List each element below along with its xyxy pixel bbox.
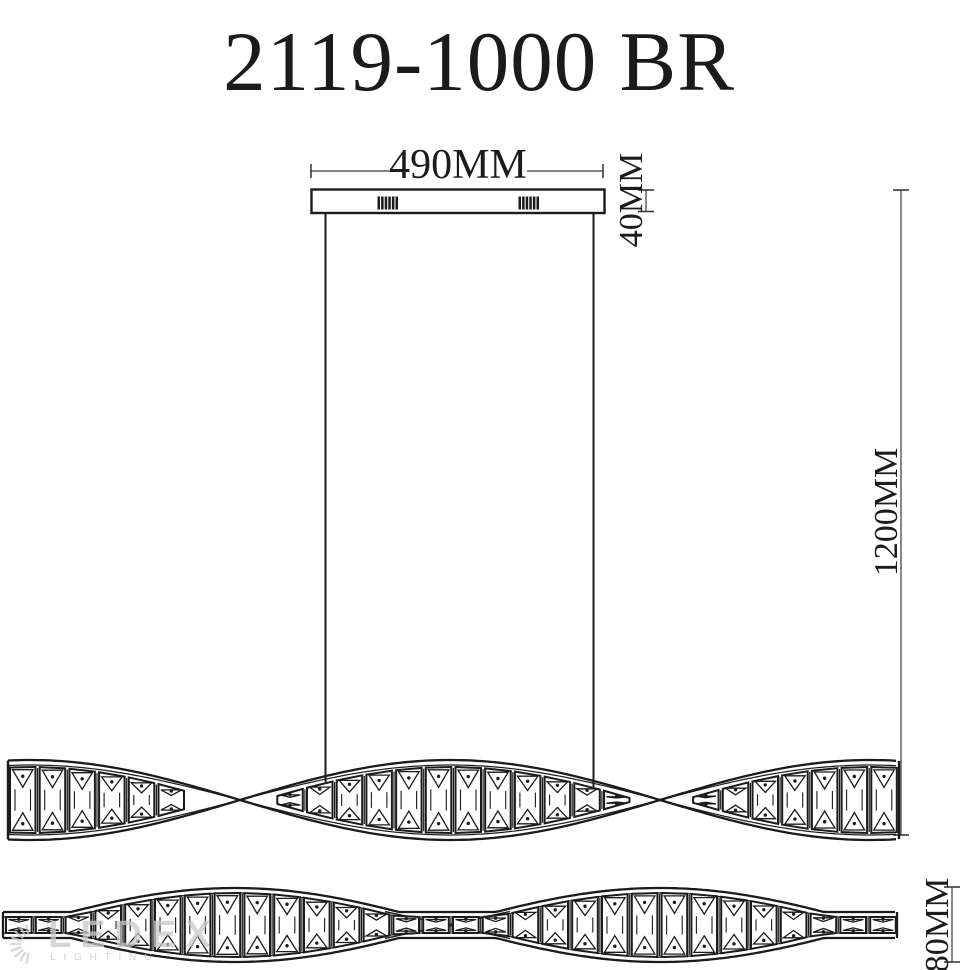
crystal-dot	[494, 917, 497, 920]
vent-bar	[533, 197, 536, 210]
crystal-dot	[375, 933, 378, 936]
canopy-width-dimension: 490MM	[311, 142, 603, 188]
crystal-dot	[852, 918, 855, 921]
crystal-dot	[51, 775, 54, 778]
crystal-dot	[526, 817, 529, 820]
technical-drawing-page: 2119-1000 BR 490MM 40MM	[0, 0, 970, 970]
crystal-prism	[159, 784, 185, 816]
vent-bar	[526, 197, 529, 210]
crystal-dot	[318, 787, 321, 790]
crystal-dot	[405, 917, 408, 920]
crystal-dot	[285, 944, 288, 947]
crystal-dot	[554, 938, 557, 941]
crystal-dot	[437, 822, 440, 825]
crystal-dot	[256, 901, 259, 904]
suspension-height-dimension: 1200MM	[868, 190, 909, 835]
crystal-dot	[80, 777, 83, 780]
vent-bar	[385, 197, 388, 210]
crystal-dot	[166, 904, 169, 907]
crystal-dot	[822, 916, 825, 919]
crystal-dot	[853, 775, 856, 778]
crystal-dot	[764, 813, 767, 816]
crystal-dot	[315, 941, 318, 944]
crystal-dot	[140, 784, 143, 787]
crystal-dot	[288, 793, 291, 796]
crystal-dot	[882, 775, 885, 778]
watermark-brand: LEDEX	[48, 914, 220, 956]
vent-bar	[388, 197, 391, 210]
crystal-dot	[467, 822, 470, 825]
vent-bar	[519, 197, 522, 210]
crystal-dot	[318, 809, 321, 812]
crystal-dot	[556, 784, 559, 787]
crystal-dot	[762, 908, 765, 911]
crystal-dot	[704, 803, 707, 806]
crystal-dot	[496, 777, 499, 780]
crystal-dot	[464, 929, 467, 932]
crystal-dot	[494, 930, 497, 933]
ceiling-canopy	[312, 190, 605, 214]
crystal-dot	[881, 918, 884, 921]
crystal-dot	[703, 902, 706, 905]
crystal-dot	[407, 820, 410, 823]
crystal-dot	[170, 807, 173, 810]
crystal-dot	[21, 775, 24, 778]
crystal-dot	[852, 929, 855, 932]
crystal-dot	[615, 794, 618, 797]
crystal-dot	[434, 929, 437, 932]
drawing-canvas: 2119-1000 BR 490MM 40MM	[0, 0, 970, 970]
fixture-wave-side-view	[8, 760, 899, 840]
crystal-dot	[882, 822, 885, 825]
crystal-dot	[703, 945, 706, 948]
crystal-dot	[823, 820, 826, 823]
crystal-dot	[554, 908, 557, 911]
crystal-dot	[110, 780, 113, 783]
crystal-dot	[170, 789, 173, 792]
crystal-dot	[407, 776, 410, 779]
crystal-dot	[762, 939, 765, 942]
crystal-dot	[110, 817, 113, 820]
canopy-outline	[312, 190, 605, 214]
crystal-dot	[613, 902, 616, 905]
crystal-dot	[377, 818, 380, 821]
crystal-prism	[693, 790, 719, 810]
crystal-dot	[288, 804, 291, 807]
canopy-width-label: 490MM	[389, 142, 527, 188]
crystal-dot	[80, 820, 83, 823]
crystal-dot	[285, 903, 288, 906]
crystal-dot	[524, 934, 527, 937]
sunburst-ray	[20, 952, 26, 962]
crystal-dot	[881, 929, 884, 932]
crystal-dot	[526, 780, 529, 783]
crystal-dot	[196, 902, 199, 905]
crystal-dot	[732, 904, 735, 907]
vent-bar	[378, 197, 381, 210]
sunburst-ray	[11, 947, 21, 951]
crystal-prism	[604, 791, 630, 810]
crystal-dot	[732, 942, 735, 945]
sunburst-ray	[27, 953, 29, 964]
crystal-dot	[226, 901, 229, 904]
page-title: 2119-1000 BR	[223, 15, 735, 109]
vent-bar	[392, 197, 395, 210]
crystal-dot	[345, 938, 348, 941]
sunburst-ray	[15, 950, 23, 957]
crystal-prism	[277, 789, 303, 811]
crystal-dot	[673, 946, 676, 949]
crystal-dot	[226, 946, 229, 949]
suspension-height-label: 1200MM	[868, 448, 905, 576]
crystal-dot	[823, 777, 826, 780]
crystal-dot	[17, 918, 20, 921]
crystal-dot	[585, 789, 588, 792]
crystal-dot	[136, 907, 139, 910]
crystal-dot	[467, 775, 470, 778]
crystal-dot	[585, 808, 588, 811]
crystal-dot	[17, 929, 20, 932]
crystal-dot	[375, 914, 378, 917]
fixture-height-dimension: 80MM	[919, 878, 960, 970]
canopy-height-dimension: 40MM	[613, 153, 654, 247]
crystal-dot	[822, 930, 825, 933]
crystal-dot	[345, 909, 348, 912]
crystal-dot	[315, 905, 318, 908]
crystal-dot	[793, 779, 796, 782]
crystal-dot	[792, 934, 795, 937]
crystal-dot	[437, 775, 440, 778]
canopy-height-label: 40MM	[613, 153, 650, 247]
watermark-subtitle: LIGHTING	[50, 951, 160, 963]
vent-bar	[381, 197, 384, 210]
crystal-dot	[583, 942, 586, 945]
crystal-dot	[615, 802, 618, 805]
crystal-dot	[464, 918, 467, 921]
crystal-dot	[405, 929, 408, 932]
crystal-dot	[643, 901, 646, 904]
crystal-dot	[583, 905, 586, 908]
crystal-dot	[434, 918, 437, 921]
crystal-dot	[613, 945, 616, 948]
crystal-dot	[673, 901, 676, 904]
crystal-dot	[734, 808, 737, 811]
vent-bar	[396, 197, 399, 210]
crystal-dot	[140, 812, 143, 815]
vent-bar	[537, 197, 540, 210]
vent-bar	[529, 197, 532, 210]
fixture-height-label: 80MM	[919, 878, 956, 970]
crystal-dot	[348, 814, 351, 817]
crystal-dot	[556, 813, 559, 816]
crystal-dot	[704, 794, 707, 797]
crystal-dot	[524, 913, 527, 916]
crystal-dot	[377, 779, 380, 782]
crystal-dot	[793, 817, 796, 820]
crystal-dot	[51, 822, 54, 825]
crystal-dot	[348, 783, 351, 786]
crystal-dot	[853, 822, 856, 825]
crystal-dot	[764, 783, 767, 786]
crystal-dot	[792, 912, 795, 915]
vent-bar	[522, 197, 525, 210]
crystal-dot	[734, 788, 737, 791]
crystal-dot	[643, 946, 646, 949]
crystal-dot	[21, 822, 24, 825]
crystal-dot	[496, 820, 499, 823]
crystal-dot	[256, 946, 259, 949]
